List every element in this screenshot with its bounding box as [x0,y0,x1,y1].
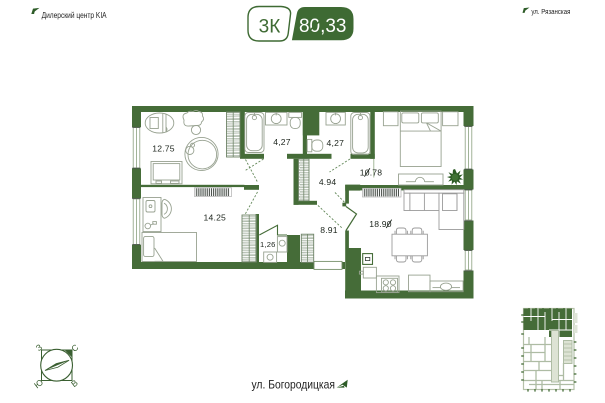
svg-text:10.78: 10.78 [360,168,383,178]
svg-text:14.25: 14.25 [204,213,227,223]
svg-text:12.75: 12.75 [152,143,175,153]
svg-text:ул. Рязанская: ул. Рязанская [531,7,570,16]
svg-text:4,27: 4,27 [327,138,345,148]
svg-text:Дилерский центр KIA: Дилерский центр KIA [42,10,107,20]
svg-text:3К: 3К [259,16,281,37]
svg-text:4,27: 4,27 [273,137,291,147]
svg-text:ул. Богородицкая: ул. Богородицкая [252,379,336,392]
svg-text:80,33: 80,33 [299,15,347,37]
svg-text:4.94: 4.94 [319,177,337,187]
svg-text:1,26: 1,26 [260,240,276,249]
svg-text:8.91: 8.91 [320,225,338,235]
